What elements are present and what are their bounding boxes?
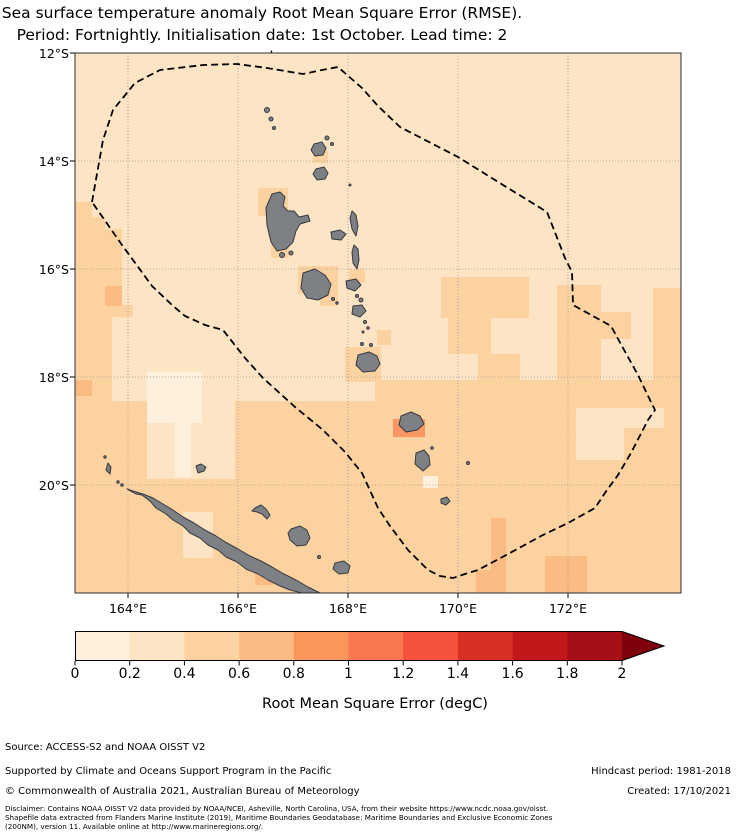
colorbar-segment — [567, 631, 622, 661]
island — [332, 298, 335, 301]
island — [367, 327, 370, 330]
title-line-1: Sea surface temperature anomaly Root Mea… — [0, 2, 524, 24]
island — [331, 143, 334, 146]
island — [467, 462, 470, 465]
island — [269, 117, 273, 121]
island — [265, 108, 270, 113]
lat-tick-label: 20°S — [21, 478, 69, 493]
island — [356, 295, 359, 298]
colorbar-segment — [458, 631, 513, 661]
island — [336, 302, 338, 304]
source-text: Source: ACCESS-S2 and NOAA OISST V2 — [5, 742, 205, 753]
colorbar-extend-arrow — [622, 631, 664, 661]
lat-tick-label: 14°S — [21, 154, 69, 169]
island — [104, 456, 106, 458]
island — [361, 343, 364, 346]
lon-tick-label: 170°E — [428, 601, 488, 616]
colorbar-tick-label: 1.4 — [447, 666, 469, 682]
lon-tick-label: 164°E — [98, 601, 158, 616]
colorbar-segment — [513, 631, 568, 661]
lat-tick-label: 16°S — [21, 262, 69, 277]
island — [362, 331, 364, 333]
colorbar-segment — [294, 631, 349, 661]
disclaimer-text: Disclaimer: Contains NOAA OISST V2 data … — [5, 804, 731, 832]
island — [117, 481, 119, 483]
colorbar-tick-label: 0.6 — [228, 666, 250, 682]
island — [121, 484, 123, 486]
hindcast-period-text: Hindcast period: 1981-2018 — [591, 766, 731, 777]
colorbar-tick-label: 1.6 — [501, 666, 523, 682]
copyright-text: © Commonwealth of Australia 2021, Austra… — [5, 786, 360, 797]
colorbar-tick-label: 1.8 — [556, 666, 578, 682]
colorbar-segment — [184, 631, 239, 661]
colorbar-tick-label: 0 — [71, 666, 80, 682]
created-date-text: Created: 17/10/2021 — [627, 786, 731, 797]
disclaimer-line-3: (200NM), version 11. Available online at… — [5, 822, 731, 831]
lon-tick-label: 168°E — [318, 601, 378, 616]
island — [431, 447, 434, 450]
figure: Sea surface temperature anomaly Root Mea… — [0, 0, 736, 839]
lat-tick-label: 12°S — [21, 46, 69, 61]
island — [273, 127, 276, 130]
disclaimer-line-1: Disclaimer: Contains NOAA OISST V2 data … — [5, 804, 731, 813]
colorbar-segment — [239, 631, 294, 661]
colorbar-tick-label: 0.2 — [119, 666, 141, 682]
island — [359, 298, 363, 302]
colorbar: 00.20.40.60.811.21.41.61.82Root Mean Squ… — [75, 631, 675, 726]
colorbar-segment — [75, 631, 130, 661]
island — [349, 184, 351, 186]
colorbar-segment — [403, 631, 458, 661]
colorbar-segment — [130, 631, 185, 661]
colorbar-tick-label: 0.4 — [173, 666, 195, 682]
island — [289, 251, 293, 255]
colorbar-tick-label: 2 — [618, 666, 627, 682]
island — [318, 556, 321, 559]
colorbar-tick-label: 0.8 — [283, 666, 305, 682]
supported-text: Supported by Climate and Oceans Support … — [5, 766, 331, 777]
disclaimer-line-2: Shapefile data extracted from Flanders M… — [5, 813, 731, 822]
colorbar-tick-label: 1 — [344, 666, 353, 682]
lon-tick-label: 172°E — [538, 601, 598, 616]
colorbar-tick-label: 1.2 — [392, 666, 414, 682]
colorbar-axis-label: Root Mean Square Error (degC) — [262, 696, 488, 712]
colorbar-segment — [349, 631, 404, 661]
island — [280, 253, 285, 258]
island — [325, 136, 329, 140]
island — [364, 321, 367, 324]
lat-tick-label: 18°S — [21, 370, 69, 385]
map-plot — [67, 51, 683, 601]
island — [370, 344, 373, 347]
lon-tick-label: 166°E — [208, 601, 268, 616]
